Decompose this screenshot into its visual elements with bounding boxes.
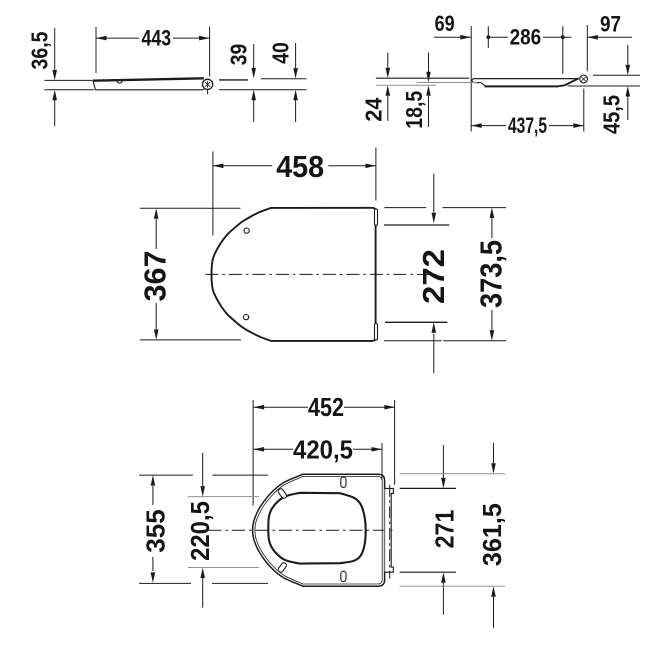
svg-text:286: 286	[510, 25, 542, 50]
svg-text:39: 39	[225, 44, 251, 66]
svg-text:69: 69	[435, 11, 455, 36]
svg-text:355: 355	[141, 509, 171, 553]
svg-text:272: 272	[416, 249, 451, 304]
svg-text:420,5: 420,5	[293, 435, 353, 465]
svg-text:452: 452	[308, 392, 344, 422]
svg-text:361,5: 361,5	[477, 503, 507, 566]
svg-text:443: 443	[142, 26, 172, 51]
svg-text:220,5: 220,5	[185, 501, 215, 561]
svg-text:18,5: 18,5	[401, 91, 427, 129]
svg-text:97: 97	[600, 11, 621, 36]
svg-text:40: 40	[267, 42, 293, 64]
svg-text:458: 458	[276, 149, 324, 184]
svg-text:271: 271	[430, 510, 460, 549]
svg-text:36,5: 36,5	[26, 32, 52, 70]
svg-text:437,5: 437,5	[508, 113, 547, 138]
svg-text:367: 367	[138, 251, 173, 302]
svg-text:373,5: 373,5	[474, 240, 509, 308]
svg-text:24: 24	[361, 98, 387, 122]
svg-text:45,5: 45,5	[598, 95, 624, 134]
